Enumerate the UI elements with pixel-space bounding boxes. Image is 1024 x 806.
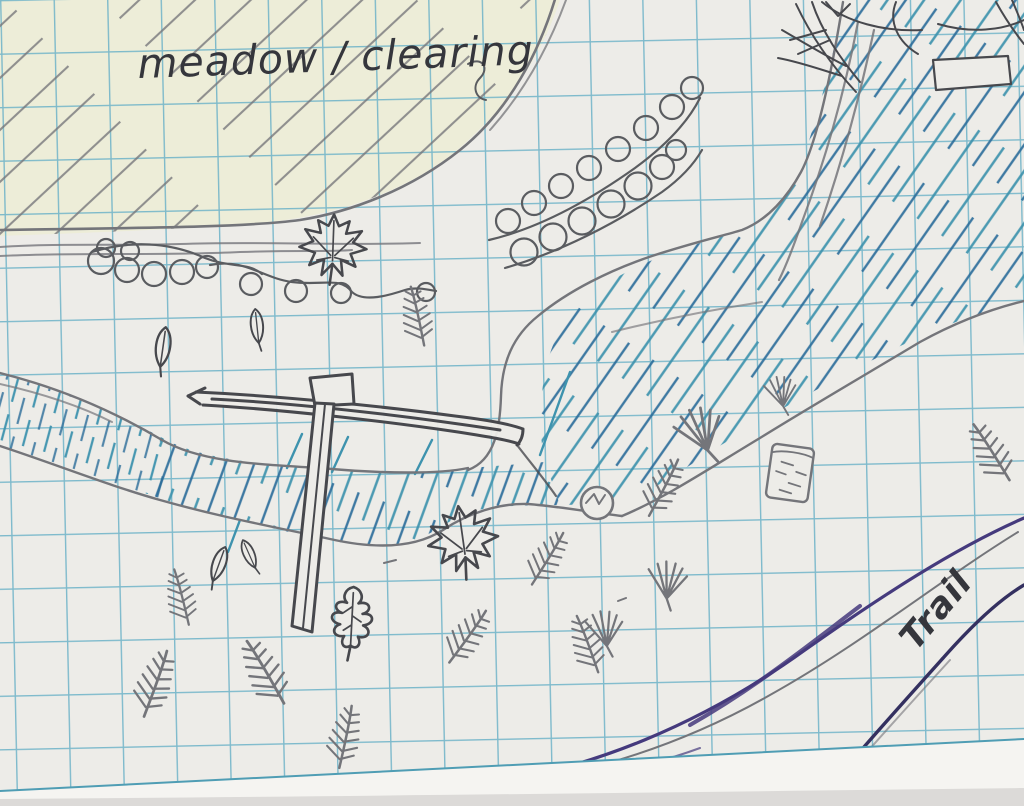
post-cap — [310, 374, 354, 406]
sketch-map-photo: meadow / clearing Trail — [0, 0, 1024, 806]
hut-outline — [933, 56, 1011, 90]
hand-drawn-map: meadow / clearing Trail — [0, 0, 1024, 806]
log-icon — [765, 443, 814, 502]
boulder-circle-icon — [581, 487, 613, 519]
